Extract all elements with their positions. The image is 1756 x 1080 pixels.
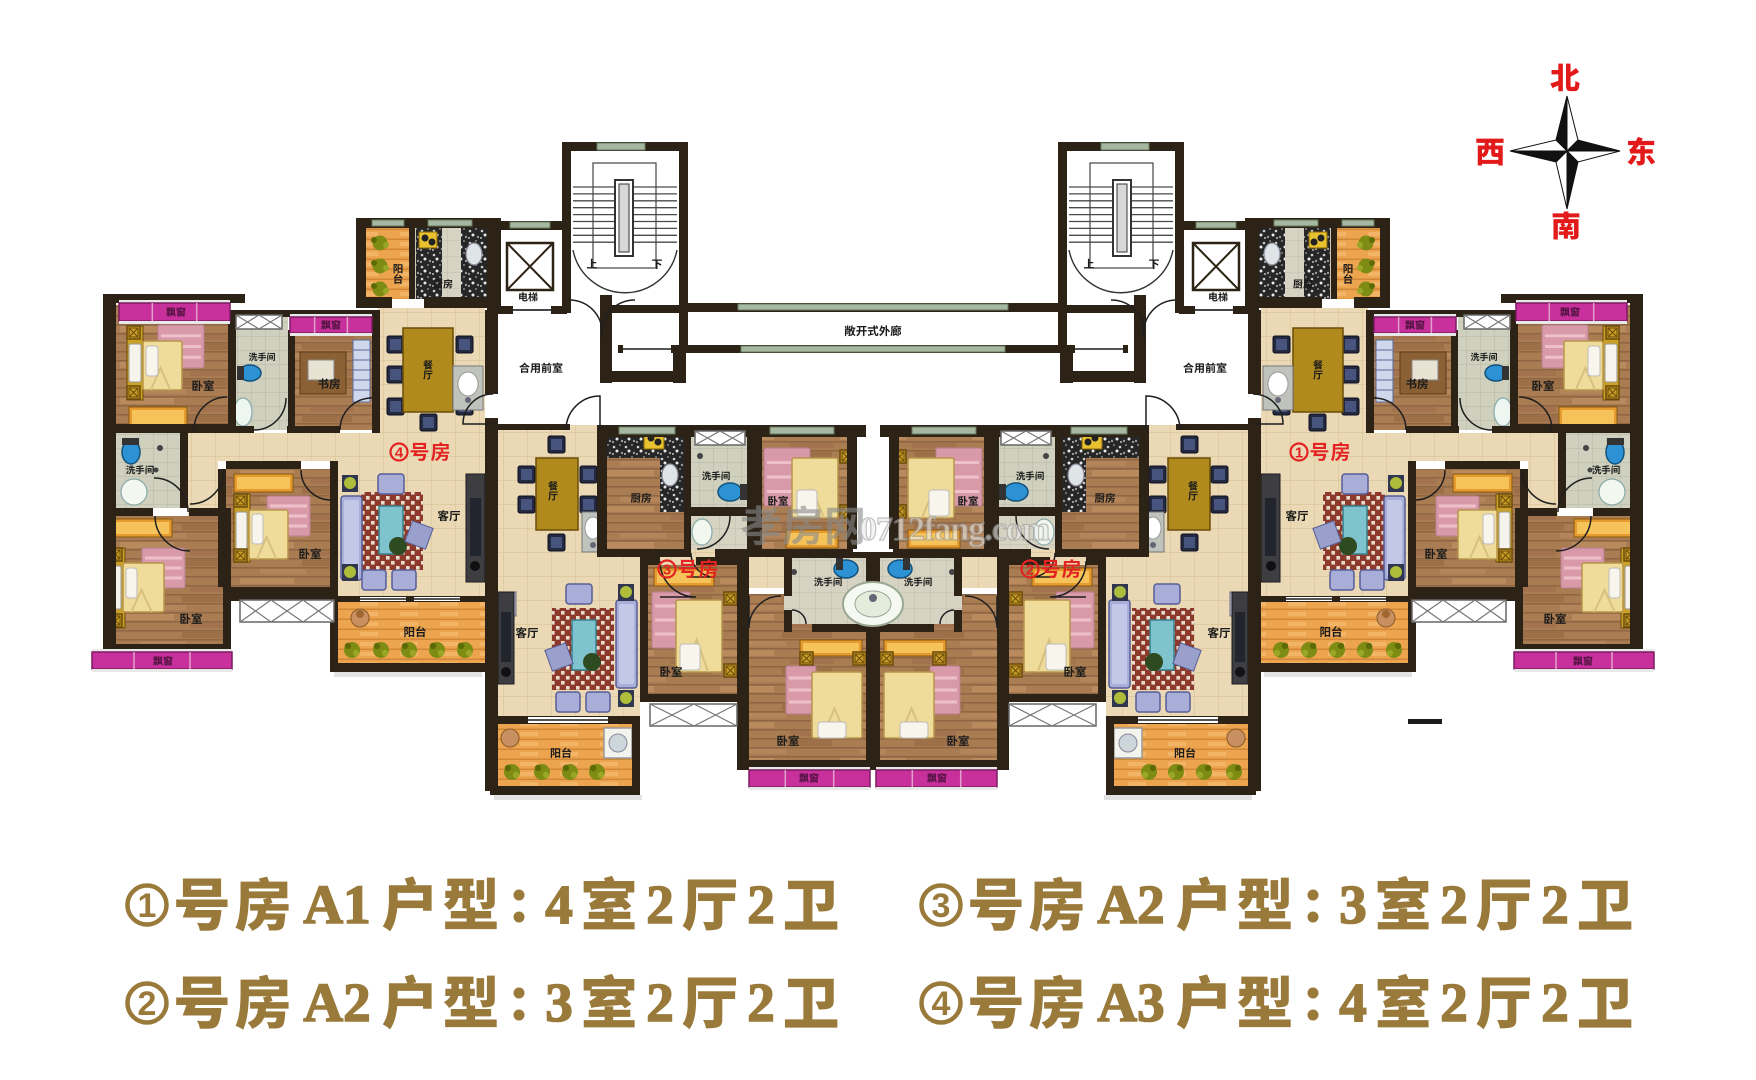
svg-text:A2: A2	[303, 972, 370, 1033]
svg-text:4: 4	[395, 445, 404, 462]
svg-text:2: 2	[646, 972, 674, 1033]
svg-text:2: 2	[138, 985, 157, 1023]
svg-text:3: 3	[545, 972, 573, 1033]
svg-text:4: 4	[1339, 972, 1367, 1033]
svg-text:2: 2	[1026, 562, 1034, 579]
svg-text:A2: A2	[1097, 874, 1164, 935]
svg-text:1: 1	[138, 887, 157, 925]
svg-text:4: 4	[932, 985, 951, 1023]
svg-text:A3: A3	[1097, 972, 1164, 1033]
svg-text:2: 2	[1541, 874, 1569, 935]
svg-text:3: 3	[932, 887, 951, 925]
svg-text:A1: A1	[303, 874, 370, 935]
svg-text:1: 1	[1295, 445, 1303, 462]
svg-text:4: 4	[545, 874, 573, 935]
svg-text:0712fang.com: 0712fang.com	[860, 511, 1050, 548]
svg-text:2: 2	[646, 874, 674, 935]
svg-text:2: 2	[1440, 874, 1468, 935]
svg-text:2: 2	[1440, 972, 1468, 1033]
svg-text:3: 3	[663, 562, 671, 579]
svg-text:2: 2	[747, 972, 775, 1033]
svg-text:3: 3	[1339, 874, 1367, 935]
svg-text:2: 2	[1541, 972, 1569, 1033]
svg-text:2: 2	[747, 874, 775, 935]
